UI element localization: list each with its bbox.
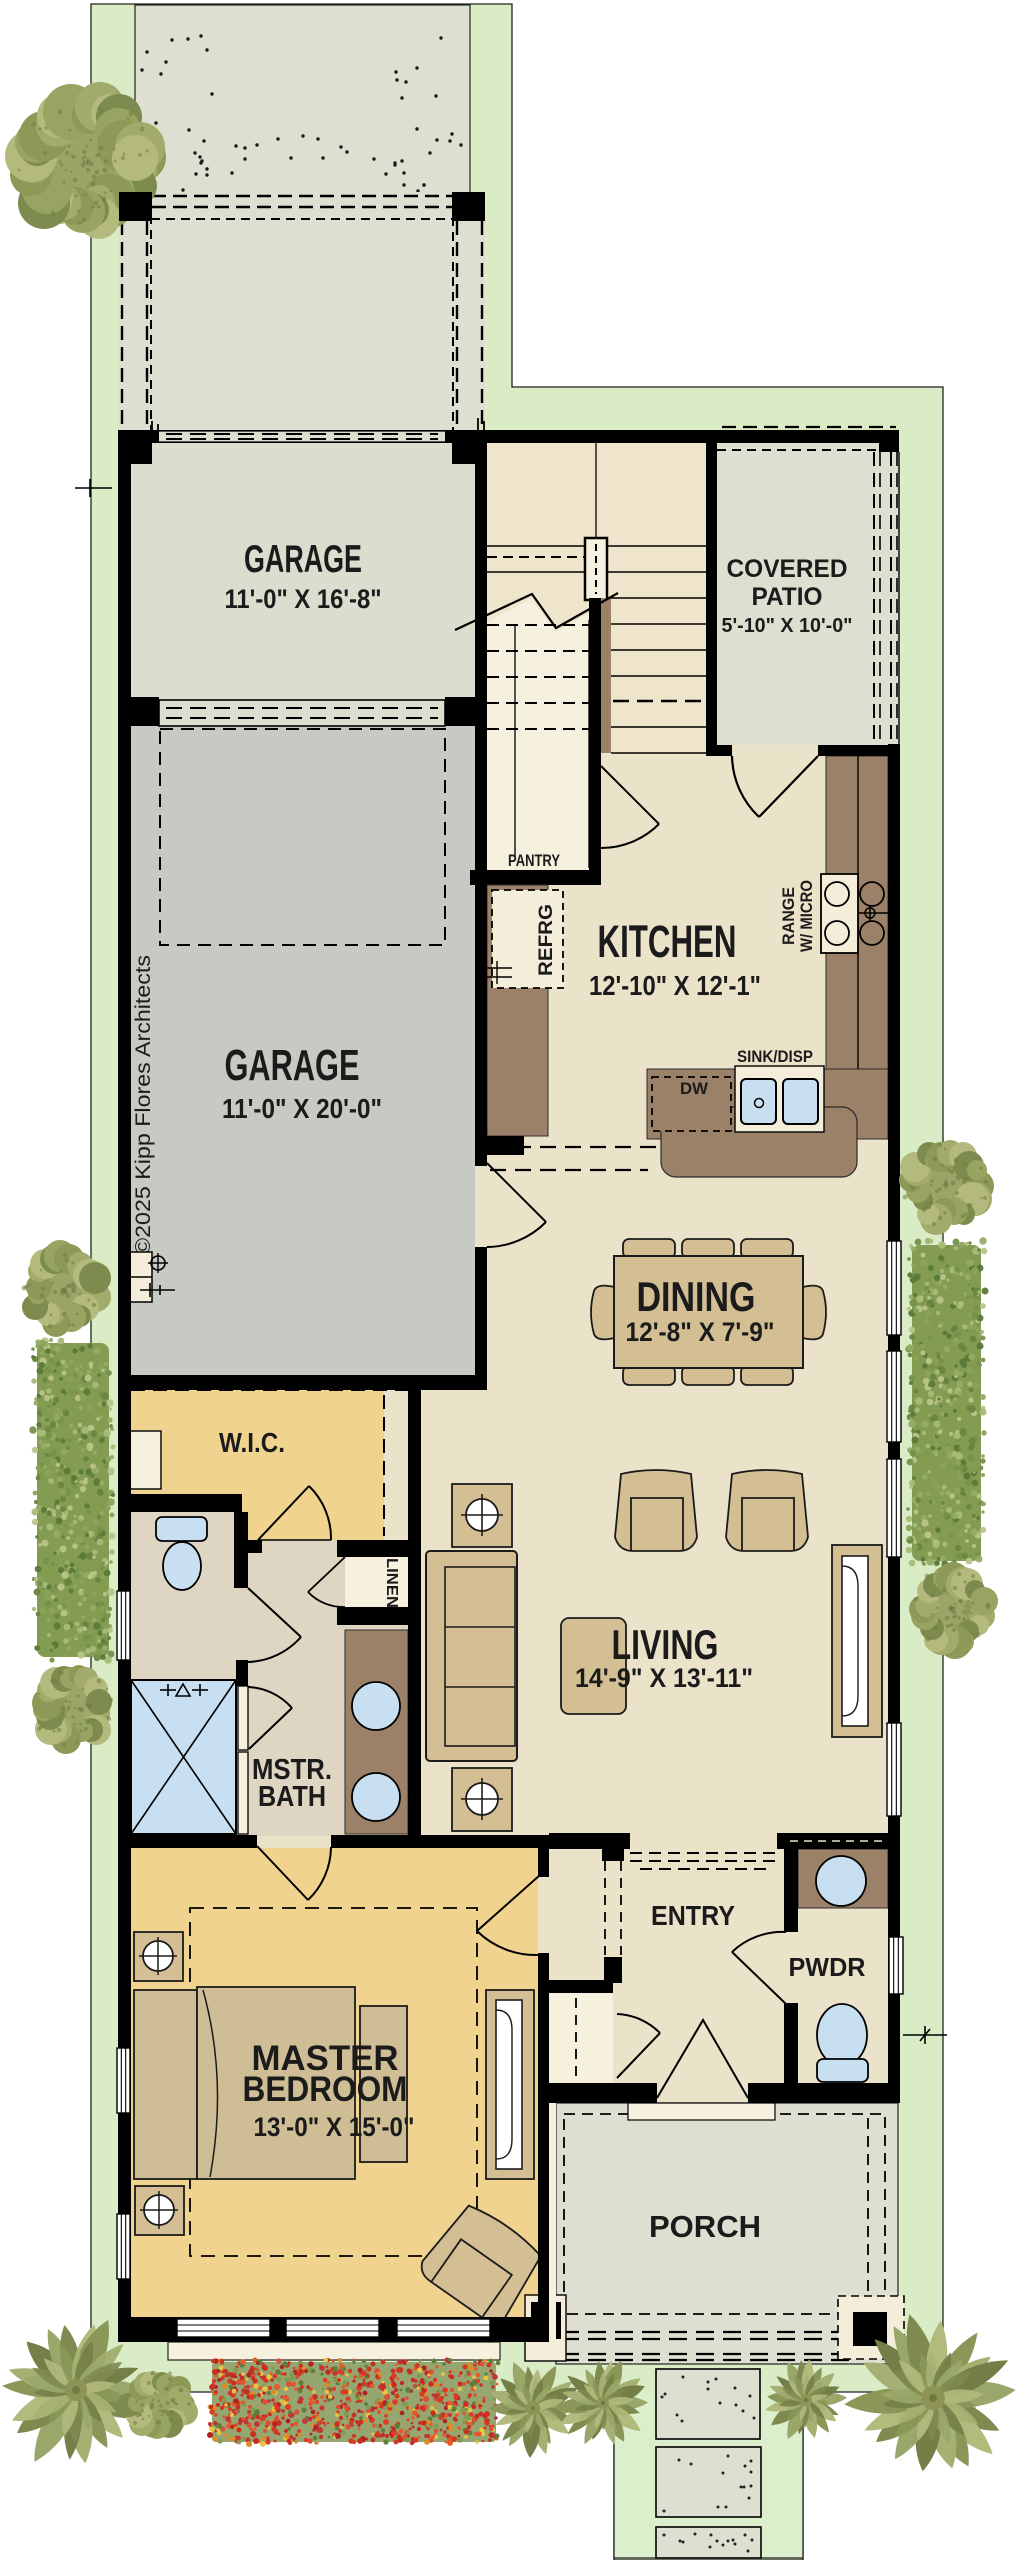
svg-text:KITCHEN: KITCHEN — [598, 916, 737, 967]
svg-text:ENTRY: ENTRY — [651, 1900, 735, 1931]
svg-text:GARAGE: GARAGE — [244, 538, 362, 581]
svg-text:RANGE: RANGE — [779, 887, 798, 945]
svg-text:12'-10" X 12'-1": 12'-10" X 12'-1" — [589, 970, 761, 1001]
svg-text:REFRG: REFRG — [536, 904, 557, 976]
svg-text:LINEN: LINEN — [383, 1558, 400, 1608]
svg-text:SINK/DISP: SINK/DISP — [737, 1047, 813, 1066]
svg-text:11'-0" X 20'-0": 11'-0" X 20'-0" — [222, 1093, 382, 1124]
svg-text:BATH: BATH — [258, 1781, 326, 1813]
svg-text:COVERED: COVERED — [727, 555, 848, 583]
svg-text:PANTRY: PANTRY — [508, 851, 561, 870]
svg-text:11'-0" X 16'-8": 11'-0" X 16'-8" — [225, 584, 382, 614]
svg-text:PORCH: PORCH — [649, 2209, 761, 2244]
svg-text:BEDROOM: BEDROOM — [243, 2070, 408, 2109]
svg-text:PWDR: PWDR — [789, 1952, 866, 1982]
svg-text:DINING: DINING — [637, 1273, 756, 1320]
svg-text:12'-8" X 7'-9": 12'-8" X 7'-9" — [626, 1317, 775, 1347]
svg-text:LIVING: LIVING — [612, 1621, 719, 1668]
svg-text:©2025 Kipp Flores Architects: ©2025 Kipp Flores Architects — [132, 955, 155, 1255]
svg-text:13'-0" X 15'-0": 13'-0" X 15'-0" — [254, 2112, 415, 2142]
svg-text:DW: DW — [680, 1079, 709, 1098]
svg-text:5'-10" X 10'-0": 5'-10" X 10'-0" — [722, 615, 853, 637]
svg-text:W/ MICRO: W/ MICRO — [797, 880, 816, 952]
svg-text:14'-9" X 13'-11": 14'-9" X 13'-11" — [575, 1663, 753, 1693]
svg-text:PATIO: PATIO — [752, 583, 823, 611]
svg-text:GARAGE: GARAGE — [225, 1041, 360, 1090]
svg-text:W.I.C.: W.I.C. — [219, 1427, 285, 1458]
